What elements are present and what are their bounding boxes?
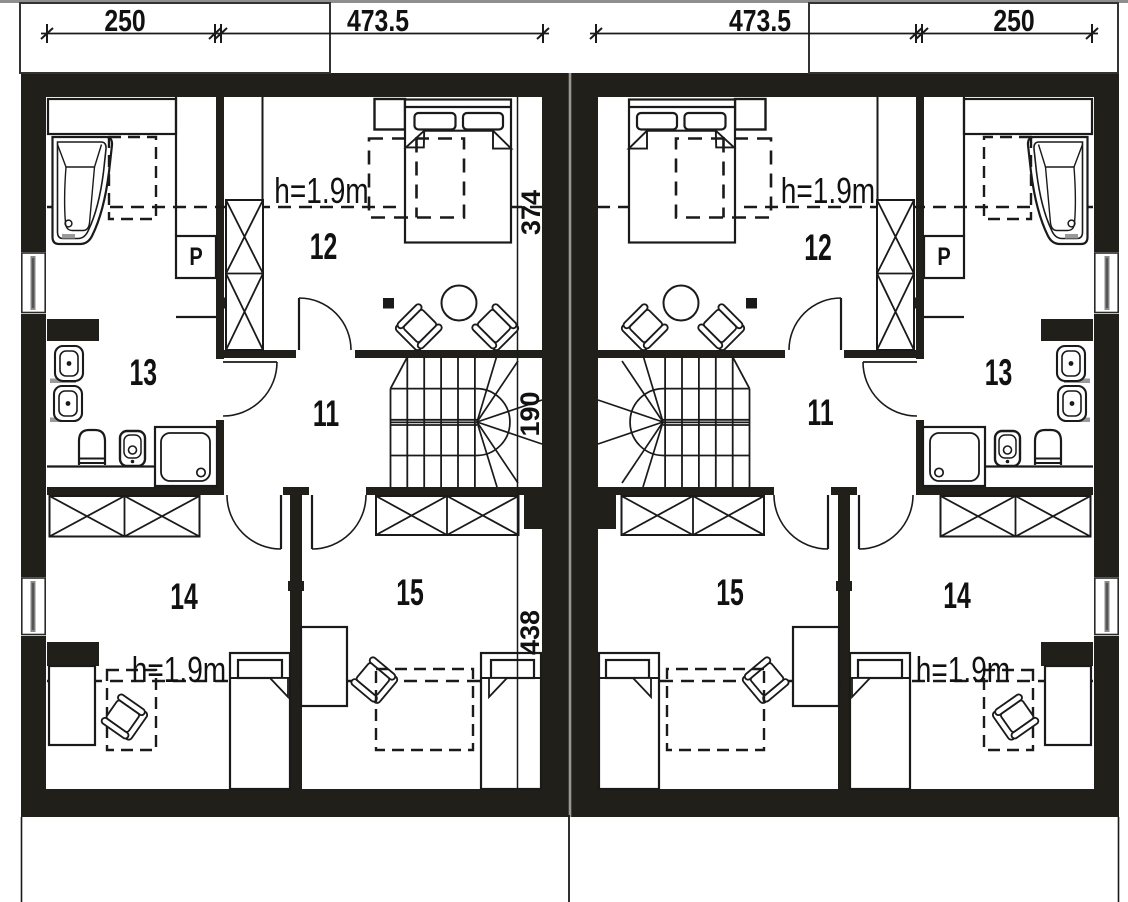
svg-text:h=1.9m: h=1.9m	[916, 650, 1010, 690]
svg-text:13: 13	[985, 351, 1013, 393]
svg-text:11: 11	[313, 392, 339, 434]
svg-text:250: 250	[993, 3, 1034, 37]
svg-text:14: 14	[943, 574, 971, 616]
svg-text:12: 12	[804, 226, 832, 268]
svg-text:15: 15	[716, 571, 744, 613]
svg-text:190: 190	[515, 391, 545, 436]
svg-text:250: 250	[104, 3, 145, 37]
svg-text:15: 15	[396, 571, 424, 613]
svg-text:P: P	[189, 243, 202, 271]
svg-text:12: 12	[310, 225, 338, 267]
svg-text:13: 13	[130, 351, 158, 393]
svg-text:438: 438	[515, 610, 545, 655]
svg-text:473.5: 473.5	[347, 3, 409, 37]
svg-text:h=1.9m: h=1.9m	[132, 650, 226, 690]
svg-text:h=1.9m: h=1.9m	[274, 171, 368, 211]
svg-text:11: 11	[807, 391, 833, 433]
svg-text:P: P	[937, 243, 950, 271]
svg-text:h=1.9m: h=1.9m	[781, 171, 875, 211]
svg-text:374: 374	[516, 190, 546, 235]
svg-text:473.5: 473.5	[729, 3, 791, 37]
svg-text:14: 14	[170, 575, 198, 617]
